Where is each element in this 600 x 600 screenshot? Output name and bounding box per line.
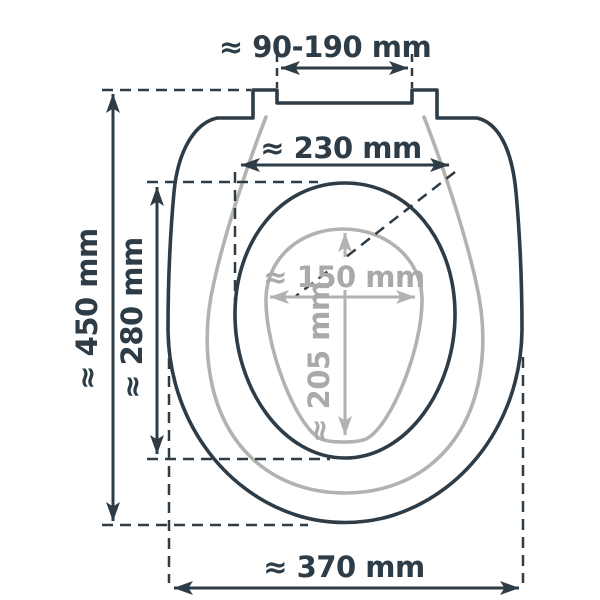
dimension-label-ring-width: ≈ 230 mm <box>260 131 421 165</box>
dimension-label-opening-width: ≈ 150 mm <box>263 260 424 294</box>
dimension-label-total-width: ≈ 370 mm <box>263 550 424 584</box>
dimension-label-ring-length: ≈ 280 mm <box>115 237 149 398</box>
diagram-canvas: ≈ 90-190 mm ≈ 230 mm ≈ 450 mm ≈ 280 mm ≈… <box>0 0 600 600</box>
dimension-label-hinge-spacing: ≈ 90-190 mm <box>219 30 431 64</box>
dimension-label-opening-length: ≈ 205 mm <box>302 281 336 442</box>
dimension-label-total-length: ≈ 450 mm <box>70 228 104 389</box>
toilet-seat-dimension-diagram: ≈ 90-190 mm ≈ 230 mm ≈ 450 mm ≈ 280 mm ≈… <box>0 0 600 600</box>
